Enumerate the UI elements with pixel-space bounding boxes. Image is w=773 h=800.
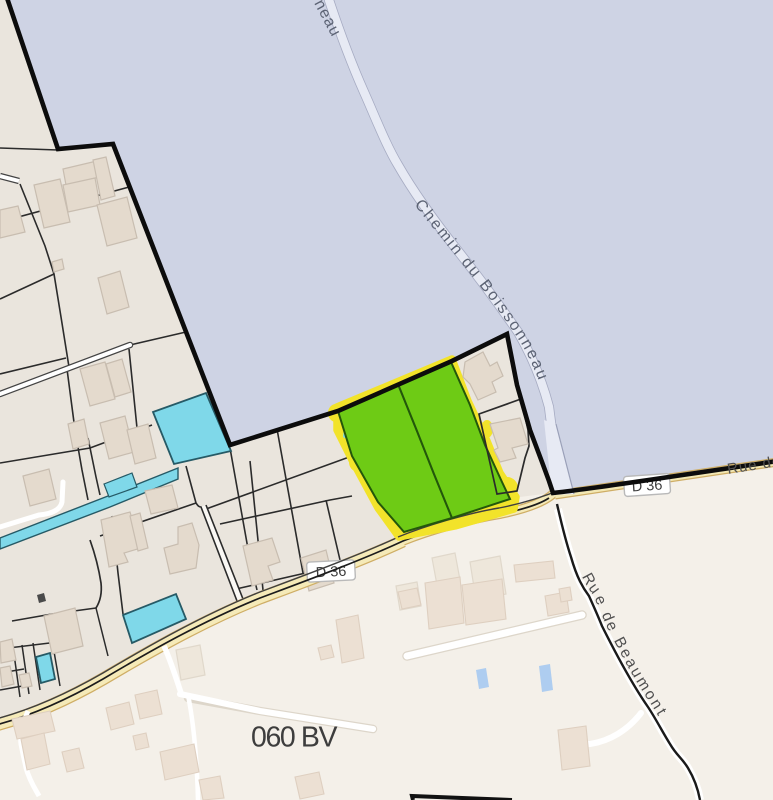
svg-text:060 BV: 060 BV	[251, 722, 337, 754]
